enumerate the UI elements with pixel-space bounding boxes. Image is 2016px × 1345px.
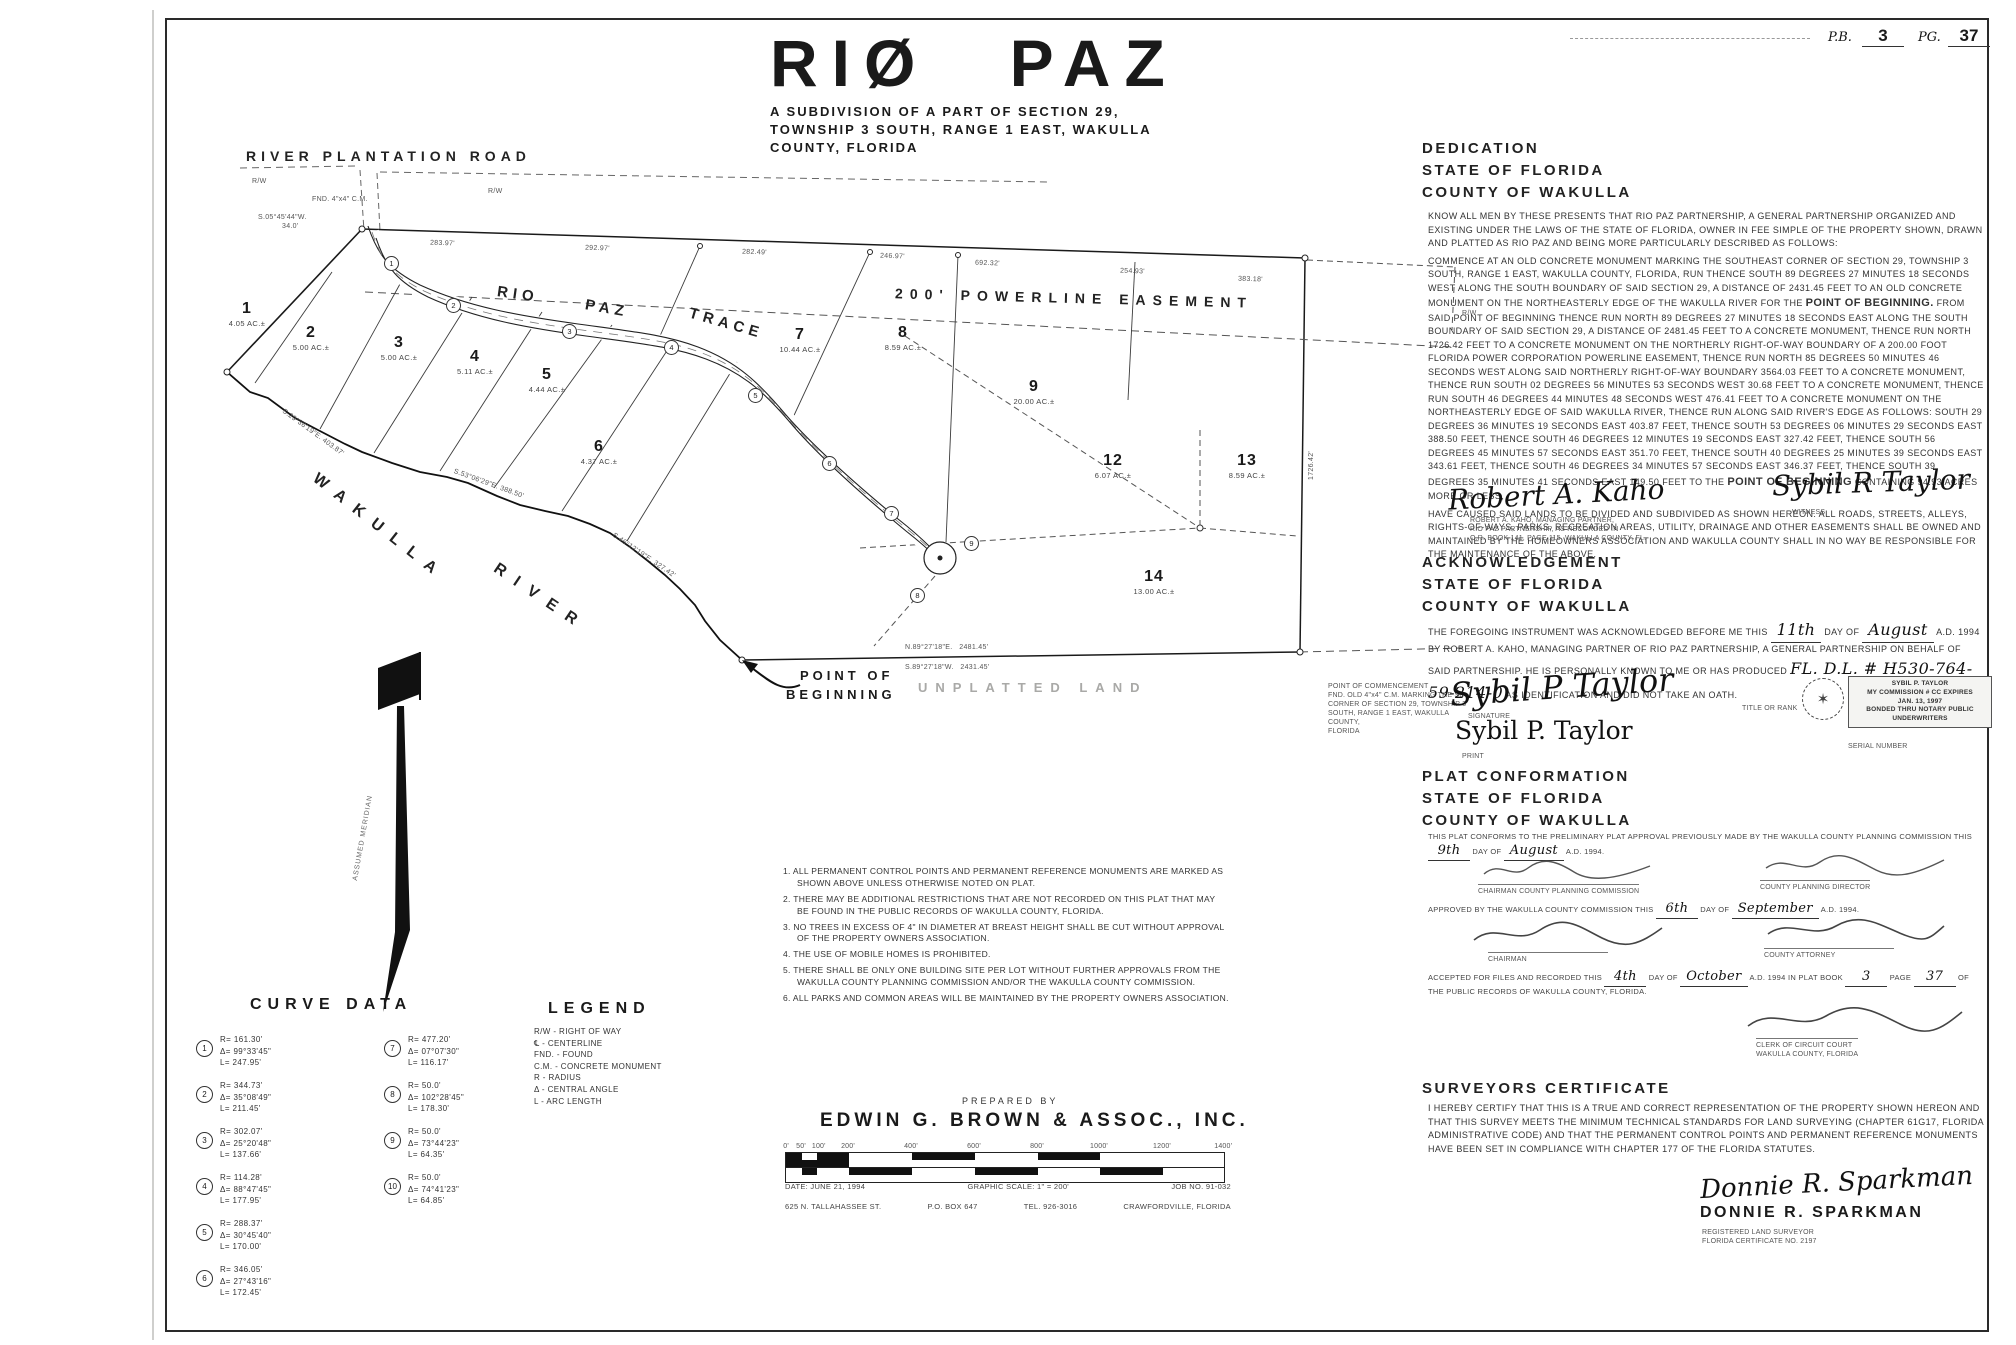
commission-chairman-signature-scribble <box>1468 918 1668 948</box>
curve-number: 4 <box>196 1178 213 1195</box>
curve-marker-number: 2 <box>451 301 455 310</box>
prepared-info-line-1: DATE: JUNE 21, 1994 GRAPHIC SCALE: 1" = … <box>785 1182 1231 1192</box>
conf-text: A.D. 1994. <box>1819 905 1859 914</box>
curve-radius: R= 114.28' <box>220 1172 271 1184</box>
surveyor-name: DONNIE R. SPARKMAN <box>1700 1204 1923 1222</box>
curve-length: L= 64.35' <box>408 1149 459 1161</box>
lot-label-6: 6 4.37 AC.± <box>576 438 622 466</box>
curve-marker-number: 7 <box>889 509 893 518</box>
pob-bold-1: POINT OF BEGINNING. <box>1806 297 1934 309</box>
note-item: 4. THE USE OF MOBILE HOMES IS PROHIBITED… <box>783 949 1229 961</box>
legend-item: Δ - CENTRAL ANGLE <box>534 1084 662 1096</box>
curve-marker: 7 <box>884 506 899 521</box>
ack-county: COUNTY OF WAKULLA <box>1422 596 1632 618</box>
curve-marker-number: 8 <box>915 591 919 600</box>
curve-entry-1: 1 R= 161.30'Δ= 99°33'45"L= 247.95' <box>196 1034 271 1069</box>
lot-number: 13 <box>1224 452 1270 470</box>
top-dim-5: 692.32' <box>975 260 1000 268</box>
curve-marker: 2 <box>446 298 461 313</box>
legend-item: ℄ - CENTERLINE <box>534 1038 662 1050</box>
curve-marker-number: 6 <box>827 459 831 468</box>
legend-item: FND. - FOUND <box>534 1049 662 1061</box>
curve-length: L= 116.17' <box>408 1057 459 1069</box>
curve-marker-number: 9 <box>969 539 973 548</box>
conf-day-2: 6th <box>1656 900 1698 919</box>
scale-bar: 0' 50' 100' 200' 400' 600' 800' 1000' 12… <box>785 1142 1225 1183</box>
firm-name: EDWIN G. BROWN & ASSOC., INC. <box>820 1110 1249 1132</box>
curve-marker: 8 <box>910 588 925 603</box>
scale-tick: 800' <box>1030 1142 1044 1151</box>
note-item: 5. THERE SHALL BE ONLY ONE BUILDING SITE… <box>783 965 1229 989</box>
lot-label-5: 5 4.44 AC.± <box>524 366 570 394</box>
lot-number: 8 <box>880 324 926 342</box>
lot-label-1: 1 4.05 AC.± <box>224 300 270 328</box>
curve-radius: R= 161.30' <box>220 1034 271 1046</box>
notary-stamp: SYBIL P. TAYLOR MY COMMISSION # CC EXPIR… <box>1848 676 1992 728</box>
curve-delta: Δ= 88°47'45" <box>220 1184 271 1196</box>
curve-number: 9 <box>384 1132 401 1149</box>
curve-radius: R= 302.07' <box>220 1126 271 1138</box>
surveyor-captions: REGISTERED LAND SURVEYOR FLORIDA CERTIFI… <box>1702 1228 1817 1246</box>
curve-number: 10 <box>384 1178 401 1195</box>
lot-label-13: 13 8.59 AC.± <box>1224 452 1270 480</box>
curve-marker: 5 <box>748 388 763 403</box>
curve-radius: R= 346.05' <box>220 1264 271 1276</box>
graphic-scale: GRAPHIC SCALE: 1" = 200' <box>968 1182 1070 1192</box>
legend-item: R/W - RIGHT OF WAY <box>534 1026 662 1038</box>
south-bearing-north: N.89°27'18"E. 2481.45' <box>905 644 988 651</box>
stamp-line: JAN. 13, 1997 <box>1854 698 1986 707</box>
curve-number: 1 <box>196 1040 213 1057</box>
curve-entry-8: 8 R= 50.0'Δ= 102°28'45"L= 178.30' <box>384 1080 464 1115</box>
scale-tick: 200' <box>841 1142 855 1151</box>
dedication-title: DEDICATION <box>1422 138 1632 160</box>
conf-county: COUNTY OF WAKULLA <box>1422 810 1632 832</box>
bearing-text: S.89°27'18"W. <box>905 664 954 671</box>
firm-po-box: P.O. BOX 647 <box>927 1202 977 1212</box>
conf-text: DAY OF <box>1698 905 1732 914</box>
certificate-heading: SURVEYORS CERTIFICATE <box>1422 1078 1671 1100</box>
lot-number: 4 <box>452 348 498 366</box>
lot-number: 1 <box>224 300 270 318</box>
legend-list: R/W - RIGHT OF WAY ℄ - CENTERLINE FND. -… <box>534 1026 662 1107</box>
curve-number: 2 <box>196 1086 213 1103</box>
owner-signature-caption: ROBERT A. KAHO, MANAGING PARTNER, RIO PA… <box>1470 516 1646 543</box>
curve-length: L= 137.66' <box>220 1149 271 1161</box>
scale-tick: 600' <box>967 1142 981 1151</box>
conf-day-1: 9th <box>1428 842 1470 861</box>
curve-number: 7 <box>384 1040 401 1057</box>
lot-number: 14 <box>1128 568 1180 586</box>
prepared-by-label: PREPARED BY <box>962 1096 1058 1106</box>
curve-entry-3: 3 R= 302.07'Δ= 25°20'48"L= 137.66' <box>196 1126 271 1161</box>
curve-length: L= 172.45' <box>220 1287 271 1299</box>
caption-line: O.R. BOOK 141, PAGE 115, WAKULLA COUNTY,… <box>1470 534 1646 543</box>
caption-line: FLORIDA CERTIFICATE NO. 2197 <box>1702 1237 1817 1246</box>
corner-bearing: S.05°45'44"W. <box>258 214 307 221</box>
dedication-county: COUNTY OF WAKULLA <box>1422 182 1632 204</box>
top-dim-7: 383.18' <box>1238 276 1263 284</box>
lot-acreage: 13.00 AC.± <box>1128 587 1180 596</box>
stamp-line: MY COMMISSION # CC EXPIRES <box>1854 689 1986 698</box>
ack-state: STATE OF FLORIDA <box>1422 574 1632 596</box>
curve-number: 3 <box>196 1132 213 1149</box>
top-dim-3: 282.49' <box>742 249 767 257</box>
right-boundary-dim: 1726.42' <box>1308 451 1315 480</box>
lot-acreage: 8.59 AC.± <box>880 343 926 352</box>
lot-acreage: 4.37 AC.± <box>576 457 622 466</box>
curve-entry-4: 4 R= 114.28'Δ= 88°47'45"L= 177.95' <box>196 1172 271 1207</box>
lot-acreage: 6.07 AC.± <box>1090 471 1136 480</box>
dedication-metes-b: FROM SAID POINT OF BEGINNING THENCE RUN … <box>1428 298 1984 487</box>
lot-label-3: 3 5.00 AC.± <box>376 334 422 362</box>
stamp-line: BONDED THRU NOTARY PUBLIC UNDERWRITERS <box>1854 706 1986 724</box>
lot-number: 12 <box>1090 452 1136 470</box>
ack-month-handwritten: August <box>1862 618 1933 643</box>
lot-acreage: 20.00 AC.± <box>1008 397 1060 406</box>
commission-chairman-caption: CHAIRMAN <box>1488 952 1608 964</box>
scale-tick: 50' <box>796 1142 806 1151</box>
top-dim-1: 283.97' <box>430 240 455 248</box>
road-name-label: RIVER PLANTATION ROAD <box>246 148 531 164</box>
lot-label-7: 7 10.44 AC.± <box>774 326 826 354</box>
conf-month-3: October <box>1680 968 1747 987</box>
scale-tick: 400' <box>904 1142 918 1151</box>
curve-delta: Δ= 30°45'40" <box>220 1230 271 1242</box>
conf-title: PLAT CONFORMATION <box>1422 766 1632 788</box>
curve-number: 8 <box>384 1086 401 1103</box>
lot-acreage: 5.00 AC.± <box>376 353 422 362</box>
curve-length: L= 211.45' <box>220 1103 271 1115</box>
curve-delta: Δ= 07°07'30" <box>408 1046 459 1058</box>
curve-delta: Δ= 35°08'49" <box>220 1092 271 1104</box>
note-item: 2. THERE MAY BE ADDITIONAL RESTRICTIONS … <box>783 894 1229 918</box>
planning-director-caption: COUNTY PLANNING DIRECTOR <box>1760 880 1870 892</box>
curve-delta: Δ= 25°20'48" <box>220 1138 271 1150</box>
lot-label-2: 2 5.00 AC.± <box>288 324 334 352</box>
curve-entry-7: 7 R= 477.20'Δ= 07°07'30"L= 116.17' <box>384 1034 459 1069</box>
curve-entry-10: 10 R= 50.0'Δ= 74°41'23"L= 64.85' <box>384 1172 459 1207</box>
curve-delta: Δ= 27°43'16" <box>220 1276 271 1288</box>
stamp-line: SYBIL P. TAYLOR <box>1854 680 1986 689</box>
plat-sheet: P.B. 3 PG. 37 RIØ PAZ A SUBDIVISION OF A… <box>0 0 2016 1345</box>
pob-line-1: POINT OF <box>800 668 896 683</box>
notary-seal-icon: ✶ <box>1802 678 1844 720</box>
legend-item: R - RADIUS <box>534 1072 662 1084</box>
conf-state: STATE OF FLORIDA <box>1422 788 1632 810</box>
scale-tick: 1000' <box>1090 1142 1108 1151</box>
caption-line: ROBERT A. KAHO, MANAGING PARTNER, <box>1470 516 1646 525</box>
conf-text: A.D. 1994 IN PLAT BOOK <box>1748 973 1846 982</box>
notary-print-caption: PRINT <box>1462 752 1484 761</box>
unplatted-land-label: UNPLATTED LAND <box>918 680 1147 695</box>
county-attorney-signature-scribble <box>1760 914 1950 944</box>
curve-length: L= 178.30' <box>408 1103 464 1115</box>
lot-acreage: 4.05 AC.± <box>224 319 270 328</box>
curve-radius: R= 477.20' <box>408 1034 459 1046</box>
curve-entry-6: 6 R= 346.05'Δ= 27°43'16"L= 172.45' <box>196 1264 271 1299</box>
conf-text: DAY OF <box>1470 847 1504 856</box>
dedication-heading: DEDICATION STATE OF FLORIDA COUNTY OF WA… <box>1422 138 1632 203</box>
job-number: JOB NO. 91-032 <box>1171 1182 1231 1192</box>
firm-phone: TEL. 926-3016 <box>1024 1202 1078 1212</box>
legend-item: C.M. - CONCRETE MONUMENT <box>534 1061 662 1073</box>
conf-text: APPROVED BY THE WAKULLA COUNTY COMMISSIO… <box>1428 905 1656 914</box>
curve-radius: R= 288.37' <box>220 1218 271 1230</box>
conf-page: 37 <box>1914 968 1956 987</box>
conformation-heading: PLAT CONFORMATION STATE OF FLORIDA COUNT… <box>1422 766 1632 831</box>
curve-marker-number: 1 <box>389 259 393 268</box>
planning-chairman-signature-scribble <box>1478 856 1658 882</box>
bearing-text: N.89°27'18"E. <box>905 644 953 651</box>
curve-length: L= 64.85' <box>408 1195 459 1207</box>
curve-marker: 1 <box>384 256 399 271</box>
caption-line: REGISTERED LAND SURVEYOR <box>1702 1228 1817 1237</box>
rw-label-1: R/W <box>252 178 267 185</box>
title-or-rank-caption: TITLE OR RANK <box>1742 704 1798 713</box>
lot-number: 5 <box>524 366 570 384</box>
notary-printed-name: Sybil P. Taylor <box>1455 716 1633 745</box>
clerk-caption: CLERK OF CIRCUIT COURT WAKULLA COUNTY, F… <box>1756 1038 1858 1059</box>
plat-notes: 1. ALL PERMANENT CONTROL POINTS AND PERM… <box>783 866 1229 1009</box>
conf-text: A.D. 1994. <box>1564 847 1604 856</box>
ack-title: ACKNOWLEDGEMENT <box>1422 552 1632 574</box>
lot-label-9: 9 20.00 AC.± <box>1008 378 1060 406</box>
caption-line: RIO PAZ PARTNERSHIP, AS RECORDED IN <box>1470 525 1646 534</box>
distance-text: 2431.45' <box>960 664 989 671</box>
ack-day-handwritten: 11th <box>1771 618 1822 643</box>
curve-marker-number: 4 <box>669 343 673 352</box>
curve-entry-9: 9 R= 50.0'Δ= 73°44'23"L= 64.35' <box>384 1126 459 1161</box>
acknowledgement-heading: ACKNOWLEDGEMENT STATE OF FLORIDA COUNTY … <box>1422 552 1632 617</box>
lot-label-14: 14 13.00 AC.± <box>1128 568 1180 596</box>
curve-entry-5: 5 R= 288.37'Δ= 30°45'40"L= 170.00' <box>196 1218 271 1253</box>
curve-length: L= 170.00' <box>220 1241 271 1253</box>
conf-text: DAY OF <box>1646 973 1680 982</box>
ack-text: THE FOREGOING INSTRUMENT WAS ACKNOWLEDGE… <box>1428 627 1771 637</box>
curve-radius: R= 344.73' <box>220 1080 271 1092</box>
dedication-state: STATE OF FLORIDA <box>1422 160 1632 182</box>
clerk-signature-scribble <box>1740 1002 1970 1034</box>
conf-text: THIS PLAT CONFORMS TO THE PRELIMINARY PL… <box>1428 832 1972 841</box>
firm-city: CRAWFORDVILLE, FLORIDA <box>1123 1202 1231 1212</box>
caption-line: WAKULLA COUNTY, FLORIDA <box>1756 1050 1858 1059</box>
top-dim-4: 246.97' <box>880 253 905 261</box>
scale-tick: 1200' <box>1153 1142 1171 1151</box>
lot-number: 7 <box>774 326 826 344</box>
firm-address: 625 N. TALLAHASSEE ST. <box>785 1202 881 1212</box>
conf-book: 3 <box>1845 968 1887 987</box>
distance-text: 2481.45' <box>959 644 988 651</box>
ack-text: DAY OF <box>1821 627 1862 637</box>
scale-tick: 0' <box>783 1142 789 1151</box>
note-item: 3. NO TREES IN EXCESS OF 4" IN DIAMETER … <box>783 922 1229 946</box>
lot-number: 3 <box>376 334 422 352</box>
planning-director-signature-scribble <box>1760 852 1950 878</box>
dedication-para-1: KNOW ALL MEN BY THESE PRESENTS THAT RIO … <box>1428 210 1984 251</box>
south-bearing-south: S.89°27'18"W. 2431.45' <box>905 664 989 671</box>
conformation-body-3: ACCEPTED FOR FILES AND RECORDED THIS 4th… <box>1428 968 1976 997</box>
top-dim-2: 292.97' <box>585 245 610 253</box>
curve-marker: 3 <box>562 324 577 339</box>
curve-delta: Δ= 73°44'23" <box>408 1138 459 1150</box>
survey-date: DATE: JUNE 21, 1994 <box>785 1182 865 1192</box>
lot-acreage: 4.44 AC.± <box>524 385 570 394</box>
curve-delta: Δ= 102°28'45" <box>408 1092 464 1104</box>
corner-distance: 34.0' <box>282 223 298 230</box>
note-item: 1. ALL PERMANENT CONTROL POINTS AND PERM… <box>783 866 1229 890</box>
lot-number: 9 <box>1008 378 1060 396</box>
curve-length: L= 247.95' <box>220 1057 271 1069</box>
curve-delta: Δ= 99°33'45" <box>220 1046 271 1058</box>
curve-number: 6 <box>196 1270 213 1287</box>
curve-marker: 6 <box>822 456 837 471</box>
rw-label-2: R/W <box>488 188 503 195</box>
curve-entry-2: 2 R= 344.73'Δ= 35°08'49"L= 211.45' <box>196 1080 271 1115</box>
curve-marker-number: 5 <box>753 391 757 400</box>
curve-delta: Δ= 74°41'23" <box>408 1184 459 1196</box>
lot-acreage: 5.00 AC.± <box>288 343 334 352</box>
lot-number: 2 <box>288 324 334 342</box>
pob-line-2: BEGINNING <box>786 687 896 702</box>
county-attorney-caption: COUNTY ATTORNEY <box>1764 948 1894 960</box>
witness-caption: WITNESS <box>1792 508 1825 517</box>
lot-acreage: 10.44 AC.± <box>774 345 826 354</box>
curve-number: 5 <box>196 1224 213 1241</box>
conf-text: PAGE <box>1887 973 1913 982</box>
curve-marker: 9 <box>964 536 979 551</box>
lot-label-8: 8 8.59 AC.± <box>880 324 926 352</box>
corner-monument-note: FND. 4"x4" C.M. <box>312 196 368 203</box>
curve-radius: R= 50.0' <box>408 1080 464 1092</box>
prepared-info-line-2: 625 N. TALLAHASSEE ST. P.O. BOX 647 TEL.… <box>785 1202 1231 1212</box>
lot-acreage: 5.11 AC.± <box>452 367 498 376</box>
scale-bar-row-1 <box>785 1152 1225 1168</box>
conf-text: ACCEPTED FOR FILES AND RECORDED THIS <box>1428 973 1604 982</box>
curve-length: L= 177.95' <box>220 1195 271 1207</box>
certificate-body: I HEREBY CERTIFY THAT THIS IS A TRUE AND… <box>1428 1102 1984 1156</box>
lot-label-12: 12 6.07 AC.± <box>1090 452 1136 480</box>
curve-radius: R= 50.0' <box>408 1126 459 1138</box>
note-item: 6. ALL PARKS AND COMMON AREAS WILL BE MA… <box>783 993 1229 1005</box>
caption-line: CLERK OF CIRCUIT COURT <box>1756 1041 1858 1050</box>
pob-label: POINT OF BEGINNING <box>800 668 896 702</box>
curve-marker: 4 <box>664 340 679 355</box>
curve-marker-number: 3 <box>567 327 571 336</box>
serial-number-caption: SERIAL NUMBER <box>1848 742 1908 751</box>
conf-day-3: 4th <box>1604 968 1646 987</box>
legend-heading: LEGEND <box>548 1000 651 1018</box>
scale-bar-row-2 <box>785 1168 1225 1183</box>
top-dim-6: 254.93' <box>1120 268 1145 276</box>
lot-acreage: 8.59 AC.± <box>1224 471 1270 480</box>
planning-chairman-caption: CHAIRMAN COUNTY PLANNING COMMISSION <box>1478 884 1639 896</box>
curve-data-heading: CURVE DATA <box>250 996 412 1014</box>
curve-radius: R= 50.0' <box>408 1172 459 1184</box>
scale-tick: 1400' <box>1214 1142 1232 1151</box>
lot-label-4: 4 5.11 AC.± <box>452 348 498 376</box>
scale-tick: 100' <box>812 1142 826 1151</box>
lot-number: 6 <box>576 438 622 456</box>
witness-signature: Sybil R Taylor <box>1771 463 1970 503</box>
legend-item: L - ARC LENGTH <box>534 1096 662 1108</box>
